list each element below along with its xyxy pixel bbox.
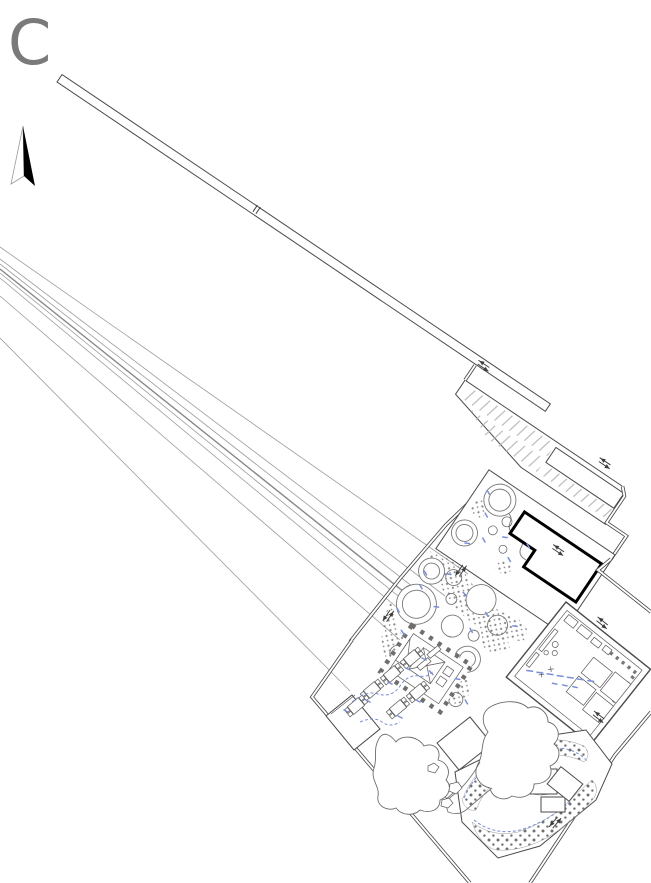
sheet-label: C xyxy=(8,6,51,79)
organic-path xyxy=(373,734,449,814)
boundary-strip xyxy=(57,75,550,412)
site-plan-sheet: C xyxy=(0,0,651,883)
shrub-marker xyxy=(466,628,481,643)
pavilion xyxy=(541,797,565,812)
site-plan-drawing: C xyxy=(0,0,651,883)
double-arrow xyxy=(596,456,612,471)
tree-marker xyxy=(437,611,468,642)
rock xyxy=(441,798,453,808)
property-lines xyxy=(0,247,468,691)
north-arrow-icon xyxy=(11,126,35,186)
